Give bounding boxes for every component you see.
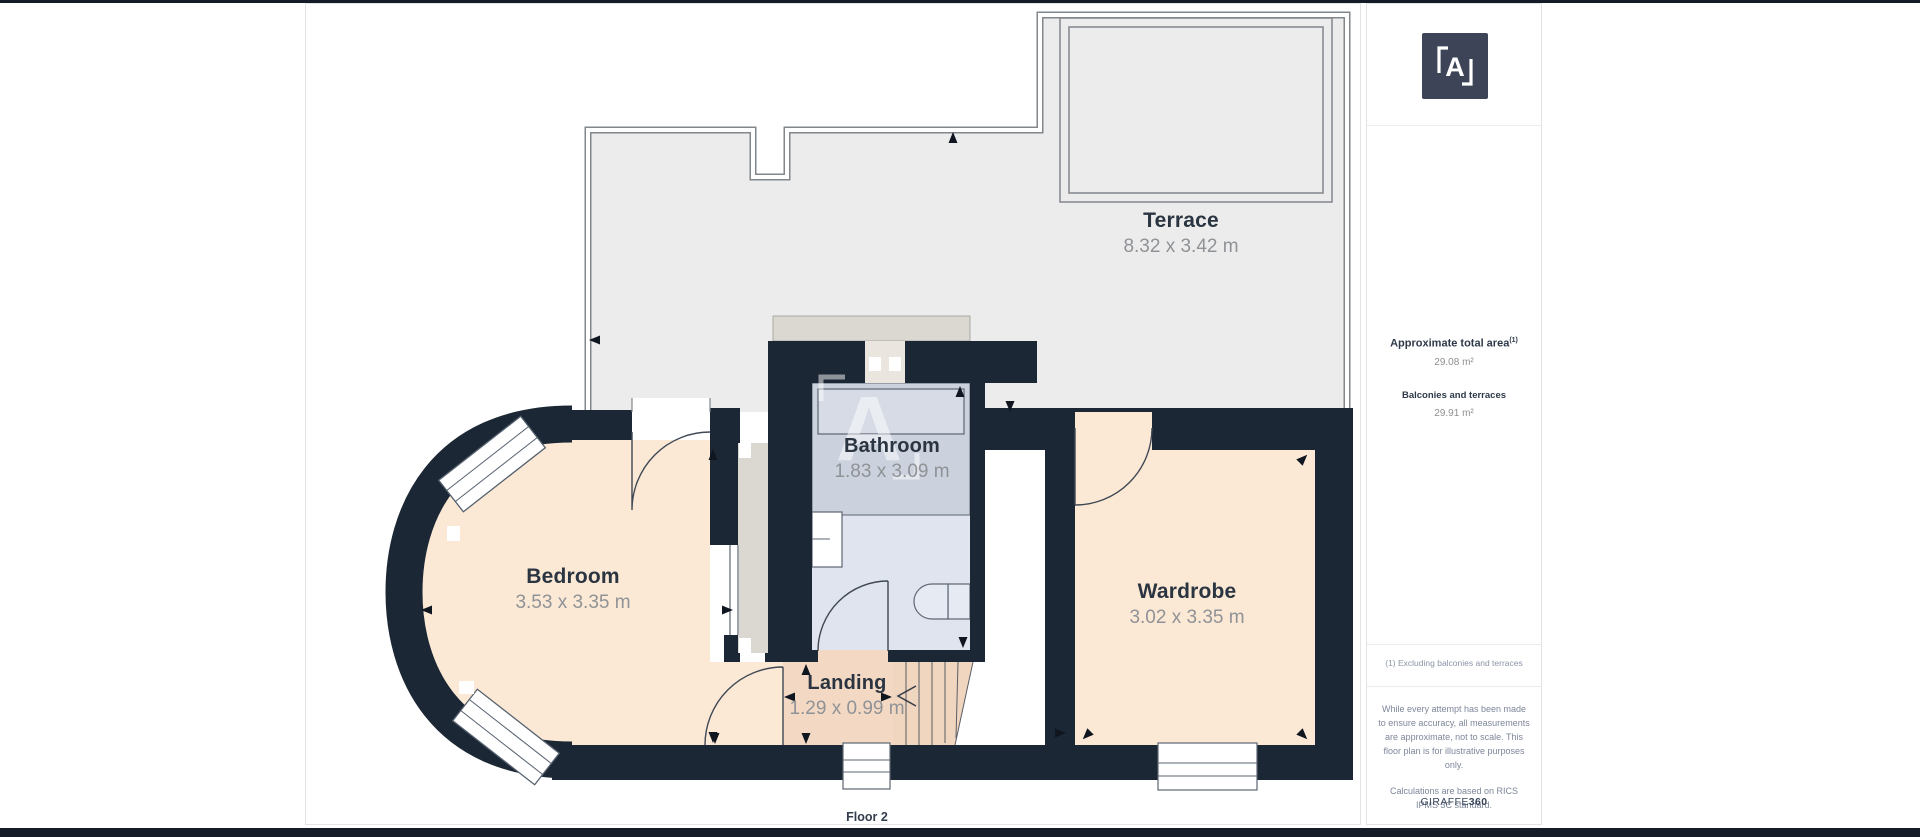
- landing-area: [783, 662, 893, 745]
- chimney-ledge: [773, 316, 970, 341]
- screenshot-stage: A Terrace 8.32 x 3.42 m Bathroom 1.83 x …: [0, 0, 1920, 837]
- floorplan-card: A Terrace 8.32 x 3.42 m Bathroom 1.83 x …: [305, 3, 1361, 825]
- wardrobe-area: [1075, 450, 1315, 745]
- landing-window: [843, 743, 890, 789]
- stairwell-void: [985, 450, 1045, 745]
- area-title: Approximate total area(1): [1367, 337, 1541, 350]
- bathroom-doorway: [818, 650, 888, 662]
- stairs-area: [893, 662, 973, 745]
- toilet: [914, 584, 970, 619]
- bedroom-doorway: [632, 398, 710, 432]
- bedroom-east-window: [729, 545, 739, 635]
- sidebar: A Approximate total area(1) 29.08 m² Bal…: [1366, 3, 1542, 825]
- area-title-footnote-ref: (1): [1509, 337, 1518, 344]
- total-area-value: 29.08 m²: [1367, 357, 1541, 368]
- light-shaft: [738, 443, 768, 653]
- footnote: (1) Excluding balconies and terraces: [1373, 658, 1535, 668]
- floor-plan-svg: A: [306, 4, 1360, 824]
- area-summary: Approximate total area(1) 29.08 m² Balco…: [1367, 337, 1541, 419]
- balconies-title: Balconies and terraces: [1367, 390, 1541, 401]
- brand-name: GIRAFFE: [1420, 796, 1468, 808]
- brand-wordmark: GIRAFFE360: [1367, 796, 1541, 808]
- divider: [1367, 125, 1541, 126]
- balconies-value: 29.91 m²: [1367, 408, 1541, 419]
- brand-logo-icon: A: [1422, 33, 1488, 99]
- floor-label: Floor 2: [767, 810, 967, 824]
- divider: [1367, 686, 1541, 687]
- wardrobe-doorway: [1075, 412, 1152, 450]
- brand-logo: A: [1422, 33, 1488, 99]
- logo-letter: A: [1445, 52, 1465, 82]
- wardrobe-window: [1158, 743, 1257, 790]
- bottom-letterbox-bar: [0, 828, 1920, 837]
- watermark-letter: A: [836, 378, 902, 480]
- brand-number: 360: [1469, 796, 1488, 808]
- divider: [1367, 644, 1541, 645]
- disclaimer-accuracy: While every attempt has been made to ens…: [1378, 703, 1530, 773]
- terrace-skylight: [1060, 18, 1332, 202]
